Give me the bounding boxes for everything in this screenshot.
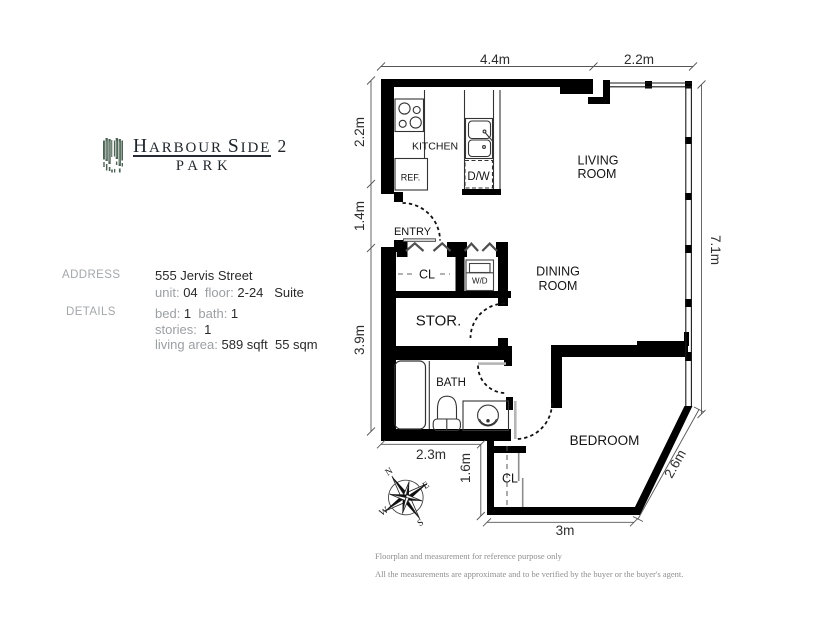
- svg-text:2.2m: 2.2m: [352, 117, 367, 147]
- svg-text:3m: 3m: [556, 523, 575, 538]
- svg-text:7.1m: 7.1m: [708, 235, 723, 265]
- svg-text:ENTRY: ENTRY: [394, 226, 432, 238]
- svg-text:BATH: BATH: [436, 377, 466, 389]
- svg-text:CL: CL: [502, 472, 518, 486]
- svg-text:S: S: [416, 518, 426, 529]
- svg-text:LIVING: LIVING: [578, 154, 619, 168]
- svg-text:1.4m: 1.4m: [352, 201, 367, 231]
- svg-text:KITCHEN: KITCHEN: [412, 141, 458, 153]
- svg-text:ROOM: ROOM: [578, 167, 617, 181]
- svg-text:CL: CL: [419, 268, 435, 282]
- svg-text:4.4m: 4.4m: [480, 52, 510, 67]
- svg-text:1.6m: 1.6m: [458, 453, 473, 483]
- svg-text:E: E: [421, 480, 431, 492]
- svg-text:ROOM: ROOM: [539, 279, 578, 293]
- svg-text:STOR.: STOR.: [416, 313, 462, 330]
- svg-text:3.9m: 3.9m: [352, 325, 367, 355]
- svg-text:2.3m: 2.3m: [416, 447, 446, 462]
- svg-text:2.2m: 2.2m: [624, 52, 654, 67]
- svg-text:REF.: REF.: [401, 173, 421, 183]
- svg-text:N: N: [384, 466, 395, 478]
- svg-text:BEDROOM: BEDROOM: [570, 433, 640, 448]
- svg-text:W/D: W/D: [472, 277, 488, 286]
- svg-text:D/W: D/W: [467, 171, 490, 183]
- svg-text:DINING: DINING: [536, 265, 580, 279]
